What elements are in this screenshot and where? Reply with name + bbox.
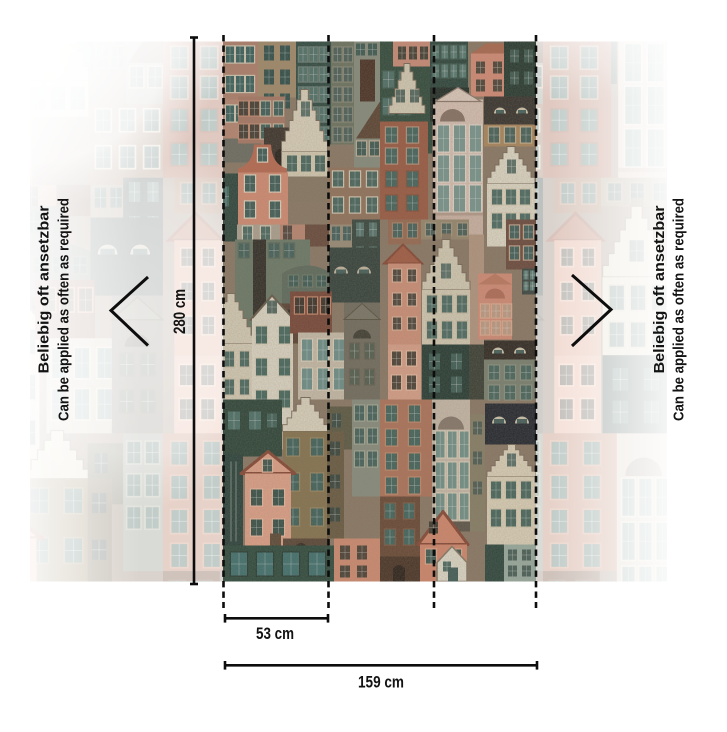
svg-text:Beliebig oft ansetzbar: Beliebig oft ansetzbar (37, 205, 53, 373)
svg-text:159 cm: 159 cm (358, 674, 404, 692)
svg-text:Beliebig oft ansetzbar: Beliebig oft ansetzbar (652, 205, 668, 373)
svg-text:280 cm: 280 cm (171, 289, 189, 334)
svg-text:53 cm: 53 cm (256, 625, 294, 643)
svg-text:Can be applied as often as req: Can be applied as often as required (57, 198, 73, 421)
svg-text:Can be applied as often as req: Can be applied as often as required (672, 198, 688, 421)
